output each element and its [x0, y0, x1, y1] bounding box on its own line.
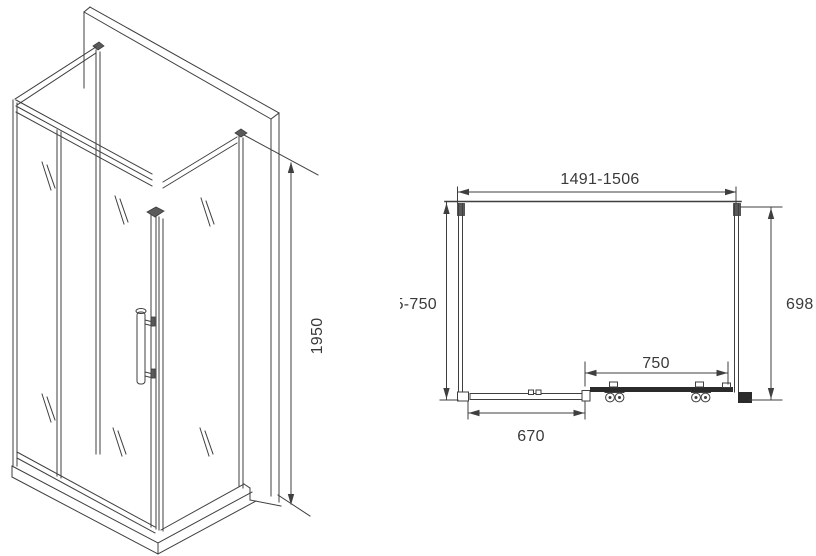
- glass-hatch-marks: [42, 162, 214, 456]
- arrow-up-icon: [288, 162, 294, 173]
- left-side-panel: [15, 42, 104, 454]
- height-dimension-label: 1950: [309, 318, 326, 355]
- fixed-panel-wall-profile: [458, 392, 469, 401]
- arrow-down-icon: [768, 388, 774, 399]
- corner-profile-block: [738, 392, 752, 403]
- drawing-canvas: 1950: [0, 0, 816, 556]
- roller-clip: [610, 382, 618, 387]
- side-panel-top-cap: [93, 42, 104, 50]
- door-end-clip: [723, 383, 731, 388]
- handle-mount-bottom: [151, 369, 155, 378]
- corner-post-cap: [147, 207, 164, 217]
- width-dimension-label: 1491-1506: [560, 171, 639, 188]
- fixed-panel-dimension-label: 670: [517, 428, 545, 445]
- panel-clip: [536, 390, 541, 395]
- front-door-assembly: [13, 100, 164, 533]
- arrow-right-icon: [725, 189, 736, 195]
- arrow-left-icon: [469, 410, 480, 416]
- arrow-down-icon: [288, 494, 294, 505]
- arrow-right-icon: [574, 410, 585, 416]
- fixed-panel-dimension: 670: [468, 402, 585, 445]
- door-dimension-label: 750: [642, 355, 670, 372]
- walls: [445, 202, 741, 394]
- door-handle: [136, 309, 155, 385]
- isometric-view: 1950: [0, 0, 370, 556]
- plan-view: 1491-1506 735-750 698: [400, 140, 816, 460]
- width-dimension: 1491-1506: [458, 171, 737, 203]
- right-side-panel: [161, 129, 247, 530]
- arrow-left-icon: [586, 370, 597, 376]
- height-dimension: 1950: [244, 135, 326, 516]
- fixed-panel: [458, 390, 591, 401]
- arrow-down-icon: [443, 388, 449, 399]
- handle-mount-top: [151, 317, 155, 326]
- depth-dimension-label: 735-750: [400, 296, 437, 313]
- fixed-panel-end-cap: [582, 391, 590, 402]
- depth-dimension: 735-750: [400, 202, 458, 401]
- arrow-up-icon: [768, 208, 774, 219]
- rollers: [605, 393, 711, 402]
- side-panel-dimension-label: 698: [786, 296, 814, 313]
- base-tray: [12, 466, 281, 554]
- sliding-door: [590, 382, 752, 403]
- door-glass-bar: [590, 387, 733, 392]
- arrow-left-icon: [458, 189, 469, 195]
- roller-clip: [696, 382, 704, 387]
- side-panel-dimension: 698: [741, 207, 814, 400]
- arrow-up-icon: [443, 203, 449, 214]
- door-dimension: 750: [585, 355, 728, 386]
- arrow-right-icon: [717, 370, 728, 376]
- panel-clip: [529, 390, 534, 395]
